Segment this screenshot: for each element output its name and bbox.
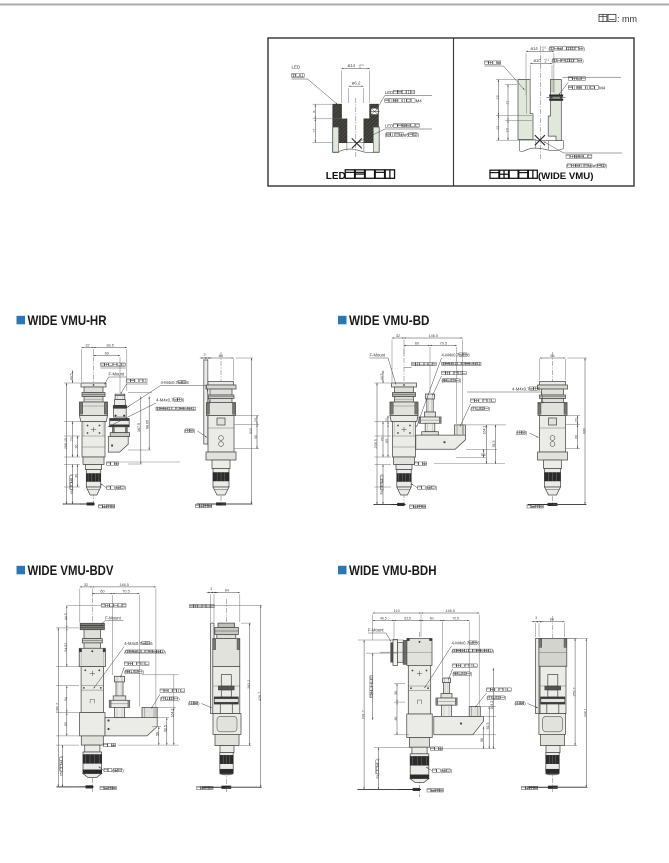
svg-text:4-M4x0.7: 4-M4x0.7 <box>512 387 530 392</box>
svg-text:32: 32 <box>85 344 89 348</box>
svg-text:19: 19 <box>496 95 500 99</box>
svg-text:(: ( <box>487 696 489 701</box>
svg-text:65: 65 <box>64 722 68 726</box>
svg-text:): ) <box>471 672 473 677</box>
svg-text:): ) <box>125 486 127 491</box>
svg-text:64: 64 <box>550 618 554 622</box>
svg-text:208.5: 208.5 <box>374 439 378 448</box>
svg-text:44.5: 44.5 <box>70 373 74 380</box>
svg-text:70.5: 70.5 <box>440 342 447 346</box>
svg-text:): ) <box>194 429 196 434</box>
svg-text:WIDE VMU-BDV: WIDE VMU-BDV <box>28 562 115 578</box>
svg-text:164.2: 164.2 <box>483 426 487 435</box>
svg-text:(: ( <box>516 431 518 436</box>
svg-text:(: ( <box>471 407 473 412</box>
svg-text:64: 64 <box>550 354 554 358</box>
svg-text:6: 6 <box>150 641 153 646</box>
svg-text:8: 8 <box>313 110 317 112</box>
svg-text:M4: M4 <box>416 99 423 104</box>
svg-text:): ) <box>60 756 64 757</box>
svg-text:32: 32 <box>396 334 400 338</box>
svg-text:(: ( <box>124 670 126 675</box>
svg-text:): ) <box>380 474 384 475</box>
svg-text:(: ( <box>112 768 114 773</box>
svg-text:30: 30 <box>75 474 79 478</box>
svg-text:44.5: 44.5 <box>380 373 384 380</box>
svg-text:56: 56 <box>480 738 484 742</box>
svg-text:65: 65 <box>385 439 389 443</box>
svg-text:56: 56 <box>394 691 398 695</box>
svg-text:5.6: 5.6 <box>481 453 486 457</box>
svg-text:6: 6 <box>477 641 480 646</box>
svg-text:44.5: 44.5 <box>64 613 68 620</box>
svg-text:60: 60 <box>100 590 104 594</box>
svg-text:180.2: 180.2 <box>56 703 60 712</box>
svg-text:4-M4x0.7: 4-M4x0.7 <box>156 398 174 403</box>
svg-text:94.62: 94.62 <box>64 643 68 652</box>
svg-text:60: 60 <box>415 342 419 346</box>
svg-text:3: 3 <box>210 587 212 591</box>
svg-text:): ) <box>70 474 74 475</box>
svg-text:54: 54 <box>64 697 68 701</box>
svg-text:4-M4x0.7: 4-M4x0.7 <box>452 641 470 646</box>
svg-text:426.7: 426.7 <box>258 692 262 701</box>
svg-text:164.2: 164.2 <box>171 709 175 718</box>
svg-text:F-Mount: F-Mount <box>109 372 125 377</box>
svg-text:ø10: ø10 <box>534 58 542 63</box>
svg-text:6: 6 <box>182 398 185 403</box>
svg-text:92.5: 92.5 <box>486 723 490 730</box>
svg-text:46.5: 46.5 <box>380 617 387 621</box>
svg-text:LED: LED <box>385 90 394 95</box>
svg-text:64: 64 <box>225 589 229 593</box>
svg-text:): ) <box>451 769 453 774</box>
svg-text:146.5: 146.5 <box>429 334 439 338</box>
svg-text:ø6.2: ø6.2 <box>352 81 361 86</box>
svg-text:167.5: 167.5 <box>137 423 141 432</box>
svg-text:110: 110 <box>394 609 400 613</box>
svg-text:98.65: 98.65 <box>145 420 149 429</box>
svg-text:): ) <box>460 378 462 383</box>
svg-text:4-M4x0.7: 4-M4x0.7 <box>124 641 142 646</box>
svg-text:(: ( <box>188 701 190 706</box>
svg-text:83.5: 83.5 <box>106 344 113 348</box>
svg-text:92.5: 92.5 <box>492 441 496 448</box>
svg-text:): ) <box>526 431 528 436</box>
svg-text:63.5: 63.5 <box>404 617 411 621</box>
svg-text:F-Mount: F-Mount <box>370 353 386 358</box>
svg-text:56: 56 <box>155 732 159 736</box>
svg-text:348.1: 348.1 <box>584 708 588 717</box>
svg-text:ø14: ø14 <box>348 63 356 68</box>
svg-text:263.2: 263.2 <box>247 680 251 689</box>
svg-text:23: 23 <box>575 418 579 422</box>
svg-text:): ) <box>178 697 180 702</box>
svg-text:231.7: 231.7 <box>361 710 365 719</box>
svg-text:92.5: 92.5 <box>164 725 168 732</box>
svg-text:330: 330 <box>582 428 586 434</box>
svg-text:146.5: 146.5 <box>445 609 455 613</box>
svg-text:60: 60 <box>430 617 434 621</box>
svg-text:(: ( <box>426 486 428 491</box>
svg-text:LED: LED <box>326 171 346 182</box>
svg-text:): ) <box>376 758 380 759</box>
svg-text:146.5: 146.5 <box>119 583 129 587</box>
svg-text:LED: LED <box>385 124 394 129</box>
svg-text:310: 310 <box>249 428 253 434</box>
svg-text:(: ( <box>160 697 162 702</box>
svg-text:6: 6 <box>467 353 470 358</box>
svg-text:(: ( <box>442 378 444 383</box>
svg-text:11: 11 <box>505 101 509 105</box>
svg-text:): ) <box>198 701 200 706</box>
svg-text:): ) <box>489 407 491 412</box>
svg-text:F-Mount: F-Mount <box>368 628 384 633</box>
svg-text:70: 70 <box>70 437 74 441</box>
svg-text:(: ( <box>115 486 117 491</box>
svg-text:3: 3 <box>203 353 205 357</box>
svg-text:12: 12 <box>313 129 317 133</box>
svg-text:): ) <box>165 649 167 654</box>
svg-text:60: 60 <box>105 352 109 356</box>
svg-text:3: 3 <box>535 616 537 620</box>
svg-text:4-M4x0.7: 4-M4x0.7 <box>442 353 460 358</box>
svg-text:: mm: : mm <box>617 14 637 24</box>
svg-text:WIDE VMU-BD: WIDE VMU-BD <box>349 312 430 328</box>
svg-text:64: 64 <box>219 354 223 358</box>
svg-text:): ) <box>122 768 124 773</box>
svg-text:WIDE VMU-BDH: WIDE VMU-BDH <box>349 562 437 578</box>
svg-text:298.15: 298.15 <box>64 438 68 449</box>
svg-text:(WIDE VMU): (WIDE VMU) <box>538 171 593 182</box>
svg-text:M4: M4 <box>599 86 606 91</box>
svg-text:70.5: 70.5 <box>122 590 129 594</box>
svg-text:70: 70 <box>380 437 384 441</box>
svg-text:85: 85 <box>394 717 398 721</box>
svg-text:(: ( <box>184 429 186 434</box>
svg-text:30: 30 <box>75 445 79 449</box>
svg-text:(: ( <box>441 769 443 774</box>
svg-text:60: 60 <box>254 435 258 439</box>
svg-text:253.7: 253.7 <box>572 688 576 697</box>
svg-text:(: ( <box>453 672 455 677</box>
svg-text:4-M4x0.7: 4-M4x0.7 <box>161 380 179 385</box>
svg-text:LED: LED <box>292 65 301 70</box>
svg-text:): ) <box>436 486 438 491</box>
svg-text:23: 23 <box>254 418 258 422</box>
svg-text:): ) <box>524 701 526 706</box>
svg-text:60: 60 <box>575 435 579 439</box>
svg-text:): ) <box>505 696 507 701</box>
svg-text:70.5: 70.5 <box>452 617 459 621</box>
svg-text:): ) <box>143 670 145 675</box>
svg-text:12: 12 <box>496 126 500 130</box>
svg-text:32: 32 <box>84 583 88 587</box>
svg-text:23: 23 <box>385 418 389 422</box>
svg-text:): ) <box>493 649 495 654</box>
svg-text:10: 10 <box>505 128 509 132</box>
svg-text:F-Mount: F-Mount <box>105 615 121 620</box>
svg-text:WIDE VMU-HR: WIDE VMU-HR <box>28 312 107 328</box>
svg-text:164.2: 164.2 <box>490 701 494 710</box>
svg-text:6: 6 <box>186 380 189 385</box>
svg-text:ø14: ø14 <box>531 46 539 51</box>
svg-text:(: ( <box>515 701 517 706</box>
